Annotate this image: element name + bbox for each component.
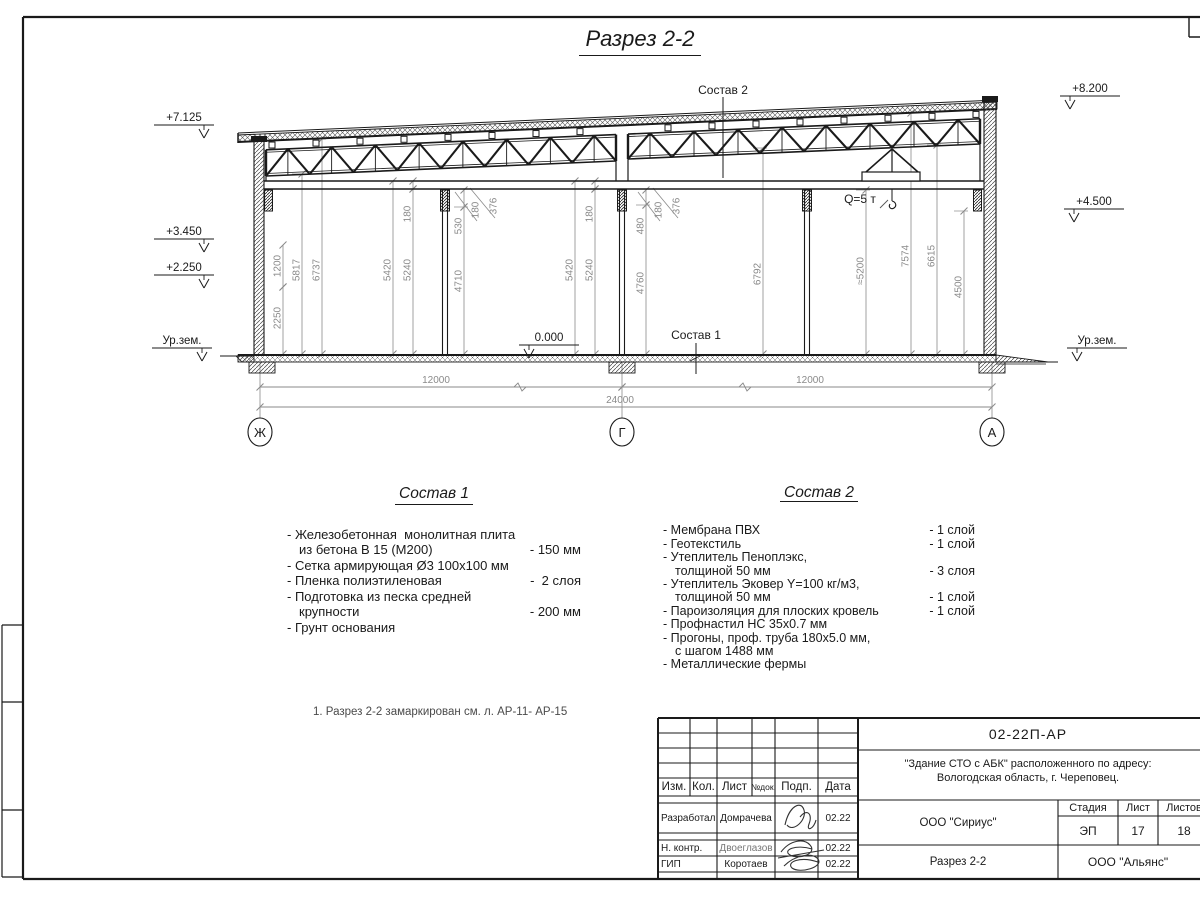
floor-slab [220, 355, 1058, 373]
list-item: - Утеплитель Пеноплэкс, [663, 551, 975, 564]
svg-text:4500: 4500 [954, 275, 965, 298]
sostav1-title: Состав 1 [287, 486, 581, 505]
svg-text:5420: 5420 [383, 258, 394, 281]
list-item: - Пленка полиэтиленовая- 2 слоя [287, 573, 581, 589]
tb-col-list: Лист [717, 778, 752, 796]
svg-text:480: 480 [636, 217, 647, 234]
list-item-value: - 1 слой [929, 524, 975, 537]
tb-col-data: Дата [818, 778, 858, 796]
svg-text:А: А [988, 425, 997, 440]
svg-text:Ж: Ж [254, 425, 266, 440]
svg-text:6737: 6737 [312, 258, 323, 281]
svg-text:≈5200: ≈5200 [856, 257, 867, 285]
list-item: - Профнастил НС 35х0.7 мм [663, 618, 975, 631]
list-item-value: - 200 мм [530, 604, 581, 620]
list-item: - Мембрана ПВХ- 1 слой [663, 524, 975, 537]
tb-col-izm: Изм. [658, 778, 690, 796]
list-item-value: - 1 слой [929, 591, 975, 604]
tb-date-gip: 02.22 [818, 856, 858, 872]
svg-text:Q=5 т: Q=5 т [844, 192, 876, 206]
list-item: - Подготовка из песка средней [287, 589, 581, 605]
sostav2-block: Состав 2 - Мембрана ПВХ- 1 слой- Геотекс… [663, 486, 975, 672]
tb-sheet-value: 17 [1118, 816, 1158, 845]
list-item: - Геотекстиль- 1 слой [663, 538, 975, 551]
tb-role-gip: ГИП [658, 856, 720, 872]
tb-stage-label: Стадия [1058, 800, 1118, 816]
svg-text:+4.500: +4.500 [1076, 196, 1112, 208]
sostav2-title: Состав 2 [663, 486, 975, 502]
list-item: - Прогоны, проф. труба 180х5.0 мм, [663, 632, 975, 645]
svg-text:1200: 1200 [273, 254, 284, 277]
sostav1-items: - Железобетонная монолитная плитаиз бето… [287, 527, 581, 636]
svg-text:4710: 4710 [454, 269, 465, 292]
svg-text:2250: 2250 [273, 306, 284, 329]
sostav1-block: Состав 1 - Железобетонная монолитная пли… [287, 486, 581, 635]
list-item: из бетона В 15 (М200)- 150 мм [287, 542, 581, 558]
tb-sheet-label: Лист [1118, 800, 1158, 816]
list-item: - Сетка армирующая Ø3 100х100 мм [287, 558, 581, 574]
right-wall [982, 96, 998, 355]
svg-text:0.000: 0.000 [535, 332, 564, 344]
tb-col-ndok: №док. [752, 778, 775, 796]
signature-developer [785, 805, 816, 828]
page-title: Разрез 2-2 [548, 26, 732, 56]
right-ramp [996, 355, 1048, 362]
list-item: толщиной 50 мм- 1 слой [663, 591, 975, 604]
svg-text:5240: 5240 [585, 258, 596, 281]
list-item-value: - 2 слоя [530, 573, 581, 589]
tb-object-line2: Вологодская область, г. Череповец. [858, 771, 1198, 785]
sostav2-items: - Мембрана ПВХ- 1 слой- Геотекстиль- 1 с… [663, 524, 975, 671]
tb-col-kol: Кол. [690, 778, 717, 796]
svg-text:5817: 5817 [292, 258, 303, 281]
sheet-note: 1. Разрез 2-2 замаркирован см. л. АР-11-… [313, 706, 567, 718]
tb-role-developer: Разработал [658, 803, 720, 833]
tb-col-podp: Подп. [775, 778, 818, 796]
list-item-value: - 1 слой [929, 605, 975, 618]
list-item: с шагом 1488 мм [663, 645, 975, 658]
svg-text:5240: 5240 [403, 258, 414, 281]
svg-text:180: 180 [585, 205, 596, 222]
svg-text:Состав 2: Состав 2 [698, 83, 748, 97]
list-item: - Пароизоляция для плоских кровель- 1 сл… [663, 605, 975, 618]
list-item-value: - 1 слой [929, 538, 975, 551]
tb-doc-code: 02-22П-АР [858, 718, 1198, 750]
tb-org2: ООО "Альянс" [1058, 845, 1198, 879]
list-item: - Грунт основания [287, 620, 581, 636]
tb-name-developer: Домрачева [717, 803, 775, 833]
margin-strip [2, 625, 23, 877]
crane-hook-icon [889, 201, 895, 209]
tb-date-ncontrol: 02.22 [818, 840, 858, 856]
svg-text:+8.200: +8.200 [1072, 83, 1108, 95]
svg-text:6792: 6792 [753, 262, 764, 285]
svg-text:Состав 1: Состав 1 [671, 328, 721, 342]
tb-name-gip: Коротаев [717, 856, 775, 872]
list-item: - Металлические фермы [663, 658, 975, 671]
svg-text:12000: 12000 [796, 375, 824, 386]
list-item-value: - 3 слоя [930, 565, 975, 578]
svg-text:530: 530 [454, 217, 465, 234]
list-item-value: - 150 мм [530, 542, 581, 558]
corner-box [1189, 17, 1200, 37]
tb-stage-value: ЭП [1058, 816, 1118, 845]
svg-text:7574: 7574 [901, 244, 912, 267]
tb-sheets-label: Листов [1158, 800, 1200, 816]
svg-text:4760: 4760 [636, 271, 647, 294]
svg-text:Ур.зем.: Ур.зем. [1077, 335, 1116, 347]
svg-text:12000: 12000 [422, 375, 450, 386]
svg-text:180: 180 [654, 201, 665, 218]
tb-name-ncontrol: Двоеглазов [717, 840, 775, 856]
tb-object: "Здание СТО с АБК" расположенного по адр… [858, 757, 1198, 785]
svg-text:+7.125: +7.125 [166, 112, 202, 124]
footing [249, 362, 275, 373]
crane-beam [264, 181, 984, 189]
svg-text:180: 180 [471, 201, 482, 218]
svg-text:180: 180 [403, 205, 414, 222]
tb-role-ncontrol: Н. контр. [658, 840, 720, 856]
tb-org1: ООО "Сириус" [858, 800, 1058, 845]
svg-text:5420: 5420 [565, 258, 576, 281]
svg-text:+3.450: +3.450 [166, 226, 202, 238]
tb-sheet-title: Разрез 2-2 [858, 845, 1058, 879]
list-item: толщиной 50 мм- 3 слоя [663, 565, 975, 578]
svg-text:6615: 6615 [927, 244, 938, 267]
tb-sheets-value: 18 [1158, 816, 1200, 845]
tb-object-line1: "Здание СТО с АБК" расположенного по адр… [858, 757, 1198, 771]
list-item: - Железобетонная монолитная плита [287, 527, 581, 543]
footing [609, 362, 635, 373]
svg-text:Ур.зем.: Ур.зем. [162, 335, 201, 347]
svg-text:Г: Г [618, 425, 625, 440]
list-item: - Утеплитель Эковер Y=100 кг/м3, [663, 578, 975, 591]
drawing-sheet: 1200225058176737542018052405304710180376… [0, 0, 1200, 900]
list-item: крупности- 200 мм [287, 604, 581, 620]
svg-text:24000: 24000 [606, 395, 634, 406]
footing [979, 362, 1005, 373]
left-wall [251, 136, 267, 355]
tb-date-developer: 02.22 [818, 803, 858, 833]
svg-text:+2.250: +2.250 [166, 262, 202, 274]
